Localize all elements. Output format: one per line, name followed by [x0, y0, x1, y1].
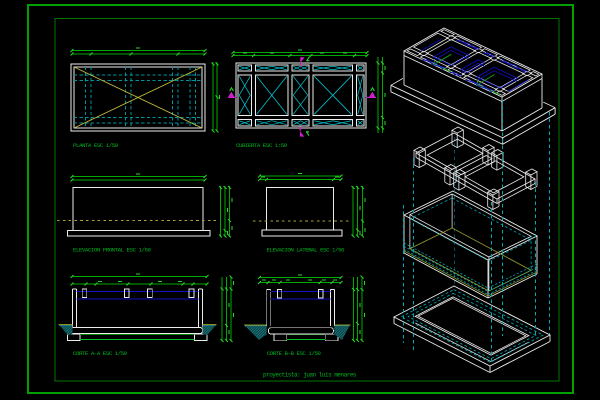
svg-text:CUBIERTA ESC 1:50: CUBIERTA ESC 1:50 — [236, 142, 288, 149]
svg-text:ELEVACION LATERAL ESC 1/50: ELEVACION LATERAL ESC 1/50 — [267, 247, 345, 254]
svg-text:PLANTA ESC 1/50: PLANTA ESC 1/50 — [73, 142, 119, 149]
svg-text:ELEVACION FRONTAL ESC 1/50: ELEVACION FRONTAL ESC 1/50 — [73, 247, 151, 254]
svg-text:CORTE A-A ESC 1/50: CORTE A-A ESC 1/50 — [73, 350, 128, 357]
svg-text:CORTE B-B ESC 1/50: CORTE B-B ESC 1/50 — [267, 350, 322, 357]
svg-text:proyectista: juan luis menares: proyectista: juan luis menares — [263, 372, 357, 379]
